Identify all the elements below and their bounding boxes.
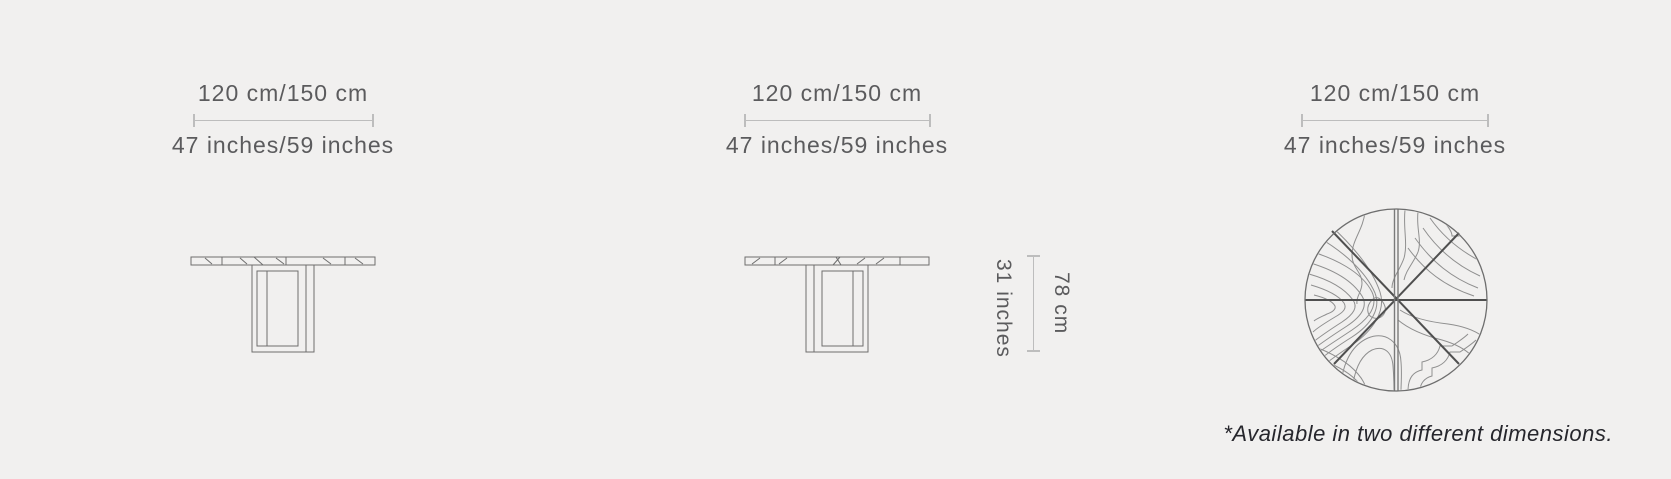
height-label-metric: 78 cm — [1048, 272, 1074, 332]
height-label-imperial: 31 inches — [990, 259, 1016, 345]
table-top-view-drawing — [1295, 199, 1497, 401]
center-width-dimension-tick-start — [744, 114, 746, 127]
left-width-dimension-tick-end — [372, 114, 374, 127]
center-width-dimension-tick-end — [929, 114, 931, 127]
tabletop-seam-lines — [1305, 209, 1487, 391]
center-width-label-metric: 120 cm/150 cm — [667, 80, 1007, 106]
pedestal-outline — [806, 265, 868, 352]
top-width-label-imperial: 47 inches/59 inches — [1225, 132, 1565, 158]
top-width-dimension-line — [1301, 120, 1489, 121]
top-width-label-metric: 120 cm/150 cm — [1225, 80, 1565, 106]
table-side-view-center-drawing — [738, 245, 938, 357]
product-dimensions-diagram: 120 cm/150 cm 47 inches/59 inches — [0, 0, 1671, 479]
height-dimension-line — [1033, 255, 1034, 352]
left-width-label-imperial: 47 inches/59 inches — [113, 132, 453, 158]
left-width-dimension-line — [193, 120, 374, 121]
tabletop-outline — [191, 257, 375, 265]
height-dimension-tick-bottom — [1027, 350, 1040, 352]
height-dimension-tick-top — [1027, 255, 1040, 257]
tabletop-outline — [745, 257, 929, 265]
center-width-dimension-line — [744, 120, 931, 121]
left-width-dimension-tick-start — [193, 114, 195, 127]
availability-footnote: *Available in two different dimensions. — [1223, 421, 1613, 447]
left-width-label-metric: 120 cm/150 cm — [113, 80, 453, 106]
center-width-label-imperial: 47 inches/59 inches — [667, 132, 1007, 158]
pedestal-outline — [252, 265, 314, 352]
table-side-view-left-drawing — [185, 245, 385, 357]
top-width-dimension-tick-start — [1301, 114, 1303, 127]
top-width-dimension-tick-end — [1487, 114, 1489, 127]
